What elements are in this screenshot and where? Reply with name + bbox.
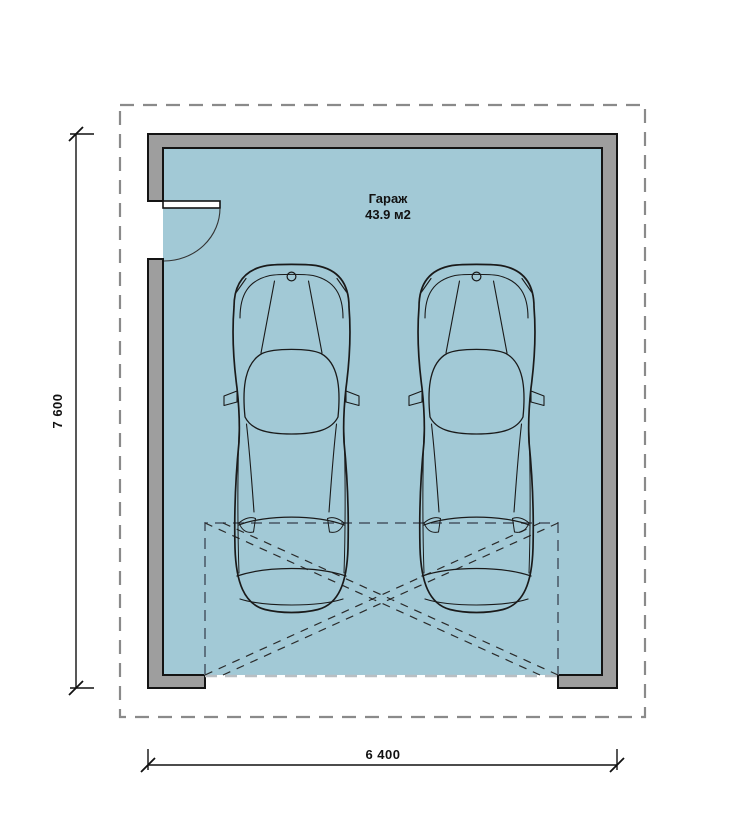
room-label-area: 43.9 м2 bbox=[365, 207, 411, 222]
entry-door-leaf bbox=[163, 201, 220, 208]
floor-plan-canvas: Гараж 43.9 м2 7 600 6 400 bbox=[0, 0, 744, 837]
dim-vertical-line bbox=[69, 127, 94, 695]
dim-horizontal-label: 6 400 bbox=[365, 747, 400, 762]
dim-vertical-label: 7 600 bbox=[50, 393, 65, 428]
garage-floor bbox=[163, 148, 602, 675]
room-label-name: Гараж bbox=[369, 191, 409, 206]
floor-plan-drawing: Гараж 43.9 м2 7 600 6 400 bbox=[0, 0, 744, 837]
